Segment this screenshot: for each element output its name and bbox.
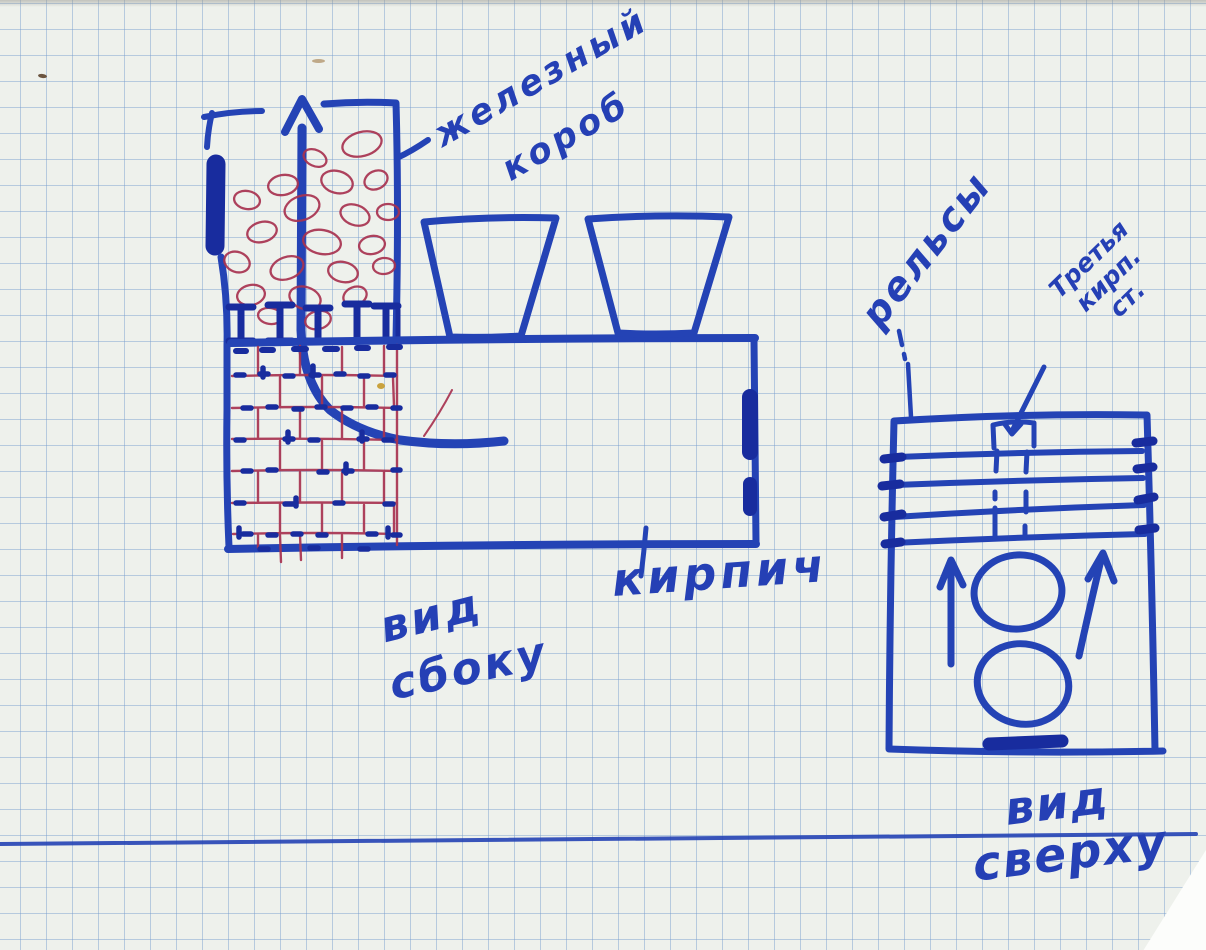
door-bar <box>989 741 1062 744</box>
rails-leader <box>899 331 911 417</box>
chimney-top-tick <box>204 111 262 147</box>
notebook-page: железный короб кирпич вид сбоку рельсы Т… <box>0 0 1206 950</box>
top-view-rails <box>893 451 1145 543</box>
draft-arrow-left <box>940 560 963 664</box>
side-view-drawing <box>204 99 756 576</box>
top-view-drawing <box>882 331 1163 752</box>
iron-box-leader <box>397 140 428 158</box>
funnel-pot-1 <box>424 218 556 338</box>
scan-top-edge <box>0 0 1206 7</box>
brick-wall-blue-dots <box>236 347 400 549</box>
stones-in-box <box>221 127 399 332</box>
iron-bar <box>215 164 216 246</box>
funnel-pot-2 <box>588 216 729 334</box>
flue-column-dashes <box>995 451 1027 538</box>
pot-opening-1 <box>970 551 1065 634</box>
paper-speck <box>377 383 385 389</box>
paper-speck <box>312 59 325 63</box>
draft-arrow-right <box>1079 553 1114 656</box>
pot-opening-2 <box>970 635 1077 732</box>
rail-ibeams <box>229 304 398 341</box>
left-wall <box>221 257 229 547</box>
flue-arrow <box>301 128 504 444</box>
